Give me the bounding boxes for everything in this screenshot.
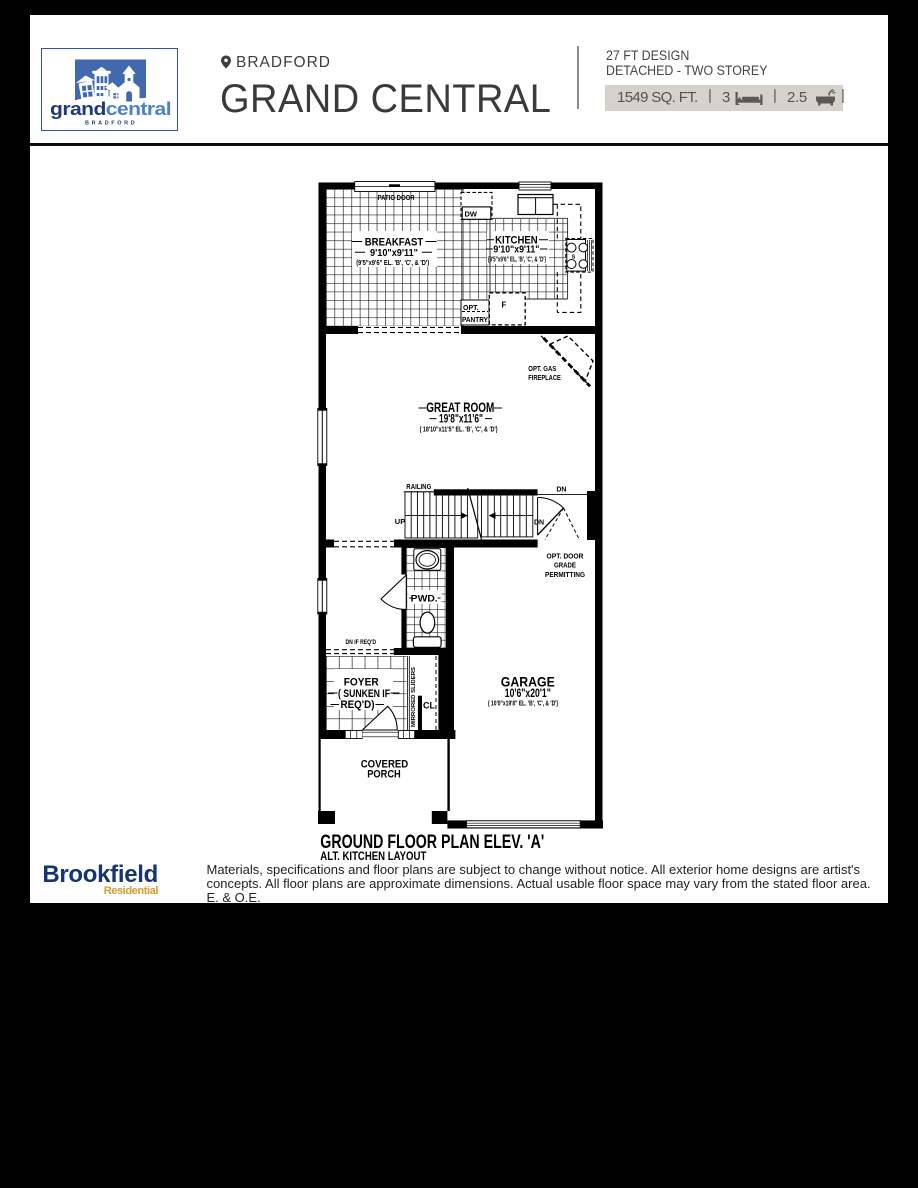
svg-text:PWD.: PWD. <box>411 594 438 605</box>
svg-text:PANTRY: PANTRY <box>462 317 488 324</box>
svg-text:UP: UP <box>395 517 405 526</box>
svg-text:S: S <box>572 255 576 261</box>
svg-text:DN: DN <box>534 520 544 527</box>
svg-text:OPT. GAS: OPT. GAS <box>528 364 556 373</box>
svg-text:( 18'10"x11'5" EL. 'B', 'C', &: ( 18'10"x11'5" EL. 'B', 'C', & 'D') <box>420 425 498 434</box>
svg-text:( 10'0"x19'8" EL. 'B', 'C', &: ( 10'0"x19'8" EL. 'B', 'C', & 'D') <box>488 699 558 708</box>
svg-text:19'8"x11'6": 19'8"x11'6" <box>439 412 483 426</box>
svg-text:DN: DN <box>556 486 566 493</box>
svg-text:GROUND FLOOR PLAN ELEV. 'A': GROUND FLOOR PLAN ELEV. 'A' <box>320 832 544 853</box>
svg-text:(9'5"x9'6" EL. 'B', 'C', & 'D': (9'5"x9'6" EL. 'B', 'C', & 'D') <box>356 258 429 267</box>
svg-text:FIREPLACE: FIREPLACE <box>528 373 561 382</box>
svg-text:(9'5"x9'6" EL. 'B', 'C', & 'D': (9'5"x9'6" EL. 'B', 'C', & 'D') <box>488 255 546 264</box>
svg-text:F: F <box>502 301 507 310</box>
svg-text:PATIO DOOR: PATIO DOOR <box>378 195 415 202</box>
svg-text:PORCH: PORCH <box>367 769 401 781</box>
svg-text:ALT. KITCHEN LAYOUT: ALT. KITCHEN LAYOUT <box>320 851 426 863</box>
svg-text:FOYER: FOYER <box>344 677 379 689</box>
svg-text:REQ'D): REQ'D) <box>341 699 375 711</box>
svg-text:DN IF REQ'D: DN IF REQ'D <box>346 639 377 646</box>
svg-text:MIRRORED SLIDERS: MIRRORED SLIDERS <box>411 667 417 727</box>
svg-text:RAILING: RAILING <box>406 484 431 491</box>
svg-text:( SUNKEN IF: ( SUNKEN IF <box>338 688 390 700</box>
svg-text:GRADE: GRADE <box>554 563 576 570</box>
svg-text:DW: DW <box>465 209 478 218</box>
svg-text:OPT.: OPT. <box>463 305 479 312</box>
svg-text:OPT. DOOR: OPT. DOOR <box>547 554 584 561</box>
svg-text:PERMITTING: PERMITTING <box>545 572 586 579</box>
svg-text:9'10"x9'11": 9'10"x9'11" <box>370 247 418 259</box>
svg-text:CL: CL <box>423 701 435 711</box>
